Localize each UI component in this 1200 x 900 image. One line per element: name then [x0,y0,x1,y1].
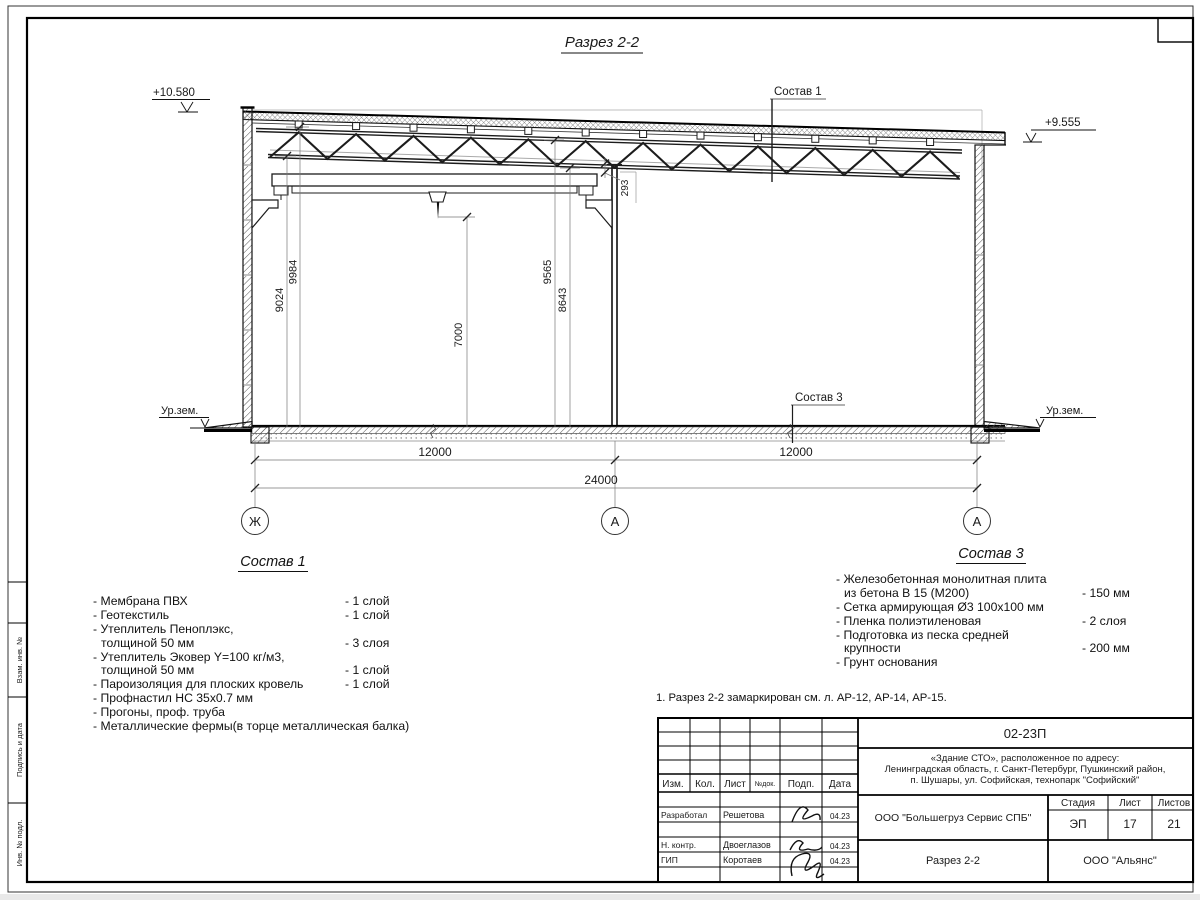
list-item: толщиной 50 мм- 1 слой [93,664,453,678]
sheets-value: 21 [1167,817,1181,831]
grid-bubble-zh: Ж [249,514,261,529]
list-item: - Пароизоляция для плоских кровель- 1 сл… [93,678,453,692]
composition1-block: Состав 1 - Мембрана ПВХ- 1 слой - Геотек… [93,556,453,734]
top-right-code-box [1158,18,1193,42]
object-line3: п. Шушары, ул. Софийская, технопарк "Соф… [911,775,1140,786]
role-0: Разработал [661,810,707,820]
name-2: Коротаев [723,855,762,865]
dim-9565: 9565 [542,260,554,284]
bottom-edge [0,894,1200,900]
dim-bay2: 12000 [779,445,813,459]
company: ООО "Большегруз Сервис СПБ" [875,812,1032,824]
col-ndok: №док. [755,781,776,788]
composition1-title: Состав 1 [93,556,453,572]
list-item: крупности- 200 мм [836,642,1146,656]
list-item: - Профнастил НС 35х0.7 мм [93,692,453,706]
object-line2: Ленинградская область, г. Санкт-Петербур… [885,764,1166,775]
date-2: 04.23 [830,857,851,866]
callout-floor-label: Состав 3 [795,392,843,404]
date-1: 04.23 [830,842,851,851]
sheet-label: Лист [1119,798,1141,809]
list-item: - Грунт основания [836,656,1146,670]
composition3-title: Состав 3 [836,548,1146,564]
building-section [190,108,1040,444]
dim-8643: 8643 [557,288,569,312]
col-kol: Кол. [695,779,715,790]
org-name: ООО "Альянс" [1083,855,1157,867]
col-data: Дата [829,779,852,790]
role-1: Н. контр. [661,840,696,850]
stage-value: ЭП [1069,817,1086,831]
sheet-value: 17 [1123,817,1137,831]
list-item: толщиной 50 мм- 3 слоя [93,637,453,651]
hoist-hook [437,202,439,219]
doc-number: 02-23П [1004,726,1047,741]
left-corbel [252,200,278,228]
elev-left-label: +10.580 [153,87,195,99]
ground-left-label: Ур.зем. [161,405,198,417]
title-block: Изм. Кол. Лист №док. Подп. Дата Разработ… [658,718,1193,882]
sheets-label: Листов [1158,798,1191,809]
dim-bay1: 12000 [418,445,452,459]
name-0: Решетова [723,810,764,820]
list-item: - Подготовка из песка средней [836,629,1146,643]
crane-beam [252,174,612,228]
note-text: 1. Разрез 2-2 замаркирован см. л. АР-12,… [656,692,947,704]
list-item: - Железобетонная монолитная плита [836,573,1146,587]
left-apron [204,422,252,429]
floor-slab [190,422,1040,444]
name-1: Двоеглазов [723,840,771,850]
elev-right-label: +9.555 [1045,117,1081,129]
dim-9984: 9984 [288,260,300,284]
drawing-sheet: Взам. инв. № Подпись и дата Инв. № подл.… [0,0,1200,900]
list-item: - Мембрана ПВХ- 1 слой [93,595,453,609]
left-wall [241,108,255,428]
margin-label-podp: Подпись и дата [15,722,24,777]
list-item: - Утеплитель Эковер Y=100 кг/м3, [93,651,453,665]
col-izm: Изм. [662,779,683,790]
section-drawing-svg: Взам. инв. № Подпись и дата Инв. № подл.… [0,0,1200,900]
drawing-title: Разрез 2-2 [565,34,640,51]
margin-label-inv: Инв. № подл. [15,820,24,867]
margin-label-vzam: Взам. инв. № [15,637,24,683]
list-item: - Геотекстиль- 1 слой [93,609,453,623]
dim-293: 293 [620,179,631,196]
callout-roof-label: Состав 1 [774,86,822,98]
list-item: - Сетка армирующая Ø3 100х100 мм [836,601,1146,615]
object-line1: «Здание СТО», расположенное по адресу: [931,753,1120,764]
right-corbel [586,200,612,228]
list-item: - Утеплитель Пеноплэкс, [93,623,453,637]
list-item: из бетона В 15 (М200)- 150 мм [836,587,1146,601]
list-item: - Прогоны, проф. труба [93,706,453,720]
hoist-trolley [429,192,446,202]
col-podp: Подп. [788,779,815,790]
grid-bubble-a1: А [611,514,620,529]
right-wall [975,145,984,427]
ground-right-label: Ур.зем. [1046,405,1083,417]
composition3-block: Состав 3 - Железобетонная монолитная пли… [836,548,1146,670]
dim-7000: 7000 [453,323,465,347]
col-list: Лист [724,779,746,790]
left-foundation [251,427,269,443]
stage-label: Стадия [1061,798,1095,809]
role-2: ГИП [661,855,678,865]
date-0: 04.23 [830,812,851,821]
list-item: - Металлические фермы(в торце металличес… [93,720,453,734]
dim-total: 24000 [584,473,618,487]
right-apron [984,422,1040,429]
list-item: - Пленка полиэтиленовая- 2 слоя [836,615,1146,629]
drawing-name: Разрез 2-2 [926,855,980,867]
dim-9024: 9024 [274,288,286,312]
grid-bubble-a2: А [973,514,982,529]
